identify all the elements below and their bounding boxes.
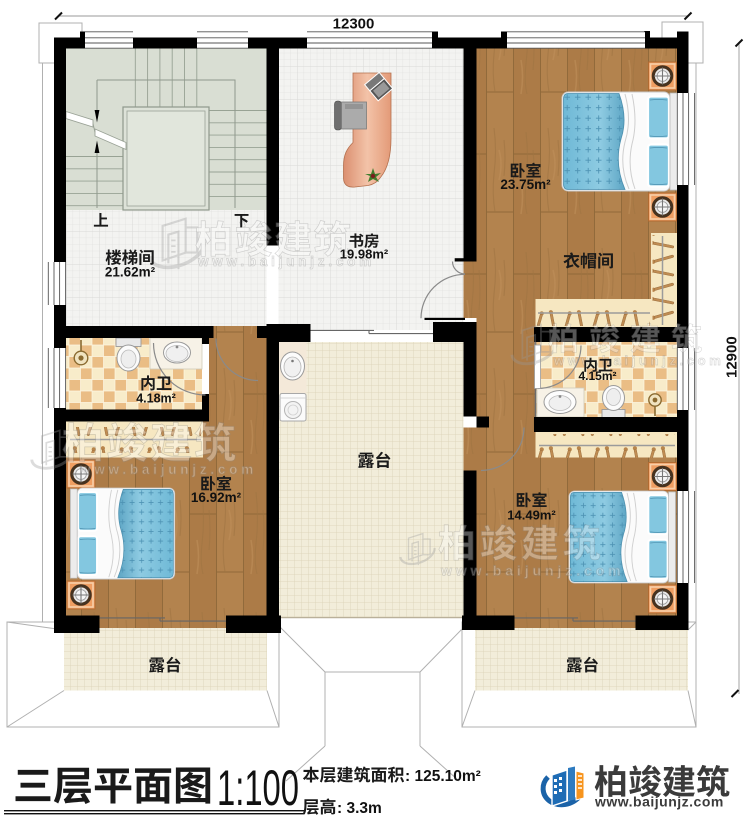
svg-text:: 3.3m: : 3.3m bbox=[337, 800, 382, 817]
svg-text:4.18m²: 4.18m² bbox=[136, 392, 176, 406]
svg-text:12900: 12900 bbox=[724, 336, 741, 378]
svg-text:16.92m²: 16.92m² bbox=[191, 490, 242, 505]
svg-text:21.62m²: 21.62m² bbox=[105, 265, 156, 280]
svg-text:14.49m²: 14.49m² bbox=[507, 508, 556, 523]
svg-text:12300: 12300 bbox=[333, 16, 375, 33]
svg-text:19.98m²: 19.98m² bbox=[340, 247, 389, 262]
svg-text:www.baijunjz.com: www.baijunjz.com bbox=[79, 462, 257, 477]
svg-text:www.baijunjz.com: www.baijunjz.com bbox=[594, 794, 724, 810]
svg-text:: 125.10m²: : 125.10m² bbox=[405, 768, 481, 785]
svg-text:www.baijunjz.com: www.baijunjz.com bbox=[440, 563, 625, 579]
svg-text:23.75m²: 23.75m² bbox=[500, 177, 551, 192]
svg-text:www.baijunjz.com: www.baijunjz.com bbox=[553, 353, 724, 368]
svg-text:4.15m²: 4.15m² bbox=[578, 369, 616, 383]
svg-text:1:100: 1:100 bbox=[217, 760, 299, 816]
